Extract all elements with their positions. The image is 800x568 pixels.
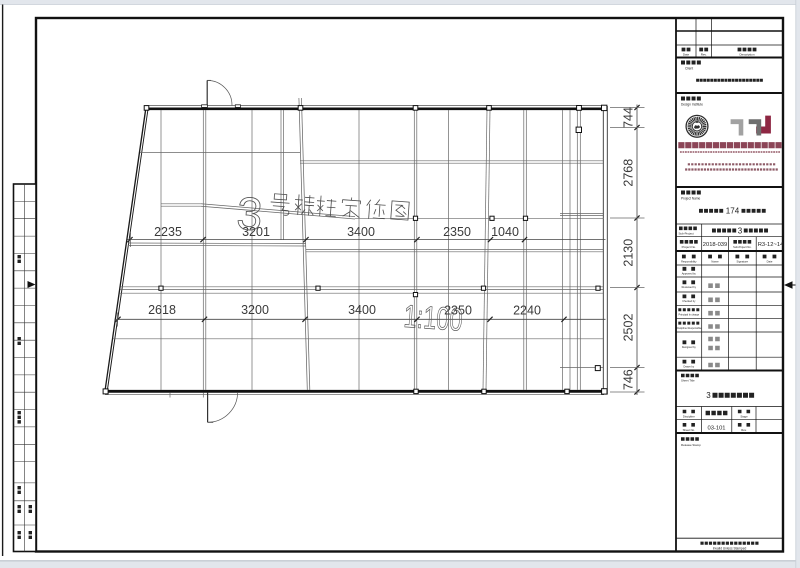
svg-text:2235: 2235 [154,225,182,239]
svg-text:Checked by: Checked by [682,300,696,303]
svg-text:2502: 2502 [622,314,636,342]
svg-text:2240: 2240 [513,304,541,318]
svg-text:2018-039: 2018-039 [703,242,728,248]
svg-text:Sheet No.: Sheet No. [683,428,696,432]
svg-text:Discipline: Discipline [683,415,695,419]
svg-text:2130: 2130 [622,239,636,267]
svg-text:Name: Name [711,260,719,264]
svg-text:Rev.: Rev. [741,428,747,432]
svg-text:Signature: Signature [737,260,749,264]
svg-text:Invalid Unless Stamped: Invalid Unless Stamped [713,547,747,551]
svg-text:Description: Description [739,53,754,57]
svg-text:Designed by: Designed by [682,346,697,349]
svg-text:Date: Date [683,53,690,57]
svg-text:03-101: 03-101 [707,425,725,431]
svg-text:Sub-Project: Sub-Project [679,232,694,236]
svg-text:Release Stamp: Release Stamp [681,443,701,447]
svg-text:Discipline Responsible: Discipline Responsible [676,327,702,330]
svg-text:746: 746 [622,369,636,390]
svg-text:3: 3 [235,187,264,241]
svg-text:Project No.: Project No. [682,245,696,249]
svg-text:1:100: 1:100 [402,298,463,338]
svg-text:174: 174 [726,207,740,216]
svg-text:3200: 3200 [241,303,269,317]
svg-text:Date: Date [767,260,773,264]
svg-text:1040: 1040 [491,225,519,239]
svg-text:Rev.: Rev. [701,53,707,57]
svg-text:Sheet Title: Sheet Title [681,379,695,383]
svg-text:Principal In charge: Principal In charge [678,314,699,317]
svg-text:Drawn by: Drawn by [684,365,695,368]
svg-text:744: 744 [622,107,636,128]
svg-text:Sub-Project No.: Sub-Project No. [733,245,752,249]
svg-text:Project Name: Project Name [681,197,701,201]
svg-text:Stage: Stage [740,415,748,419]
svg-text:2618: 2618 [148,303,176,317]
svg-text:Reviewed by: Reviewed by [682,286,697,289]
svg-text:3: 3 [738,227,743,236]
svg-text:2768: 2768 [622,159,636,187]
svg-text:Client: Client [685,67,693,71]
svg-text:3: 3 [706,391,711,400]
svg-text:Responsibility: Responsibility [681,261,697,264]
svg-text:Approved by: Approved by [682,273,697,276]
svg-text:3400: 3400 [347,225,375,239]
svg-text:Design Institute: Design Institute [681,103,703,107]
svg-text:R3-12~14: R3-12~14 [758,242,784,248]
svg-text:3400: 3400 [348,303,376,317]
svg-text:2350: 2350 [443,225,471,239]
